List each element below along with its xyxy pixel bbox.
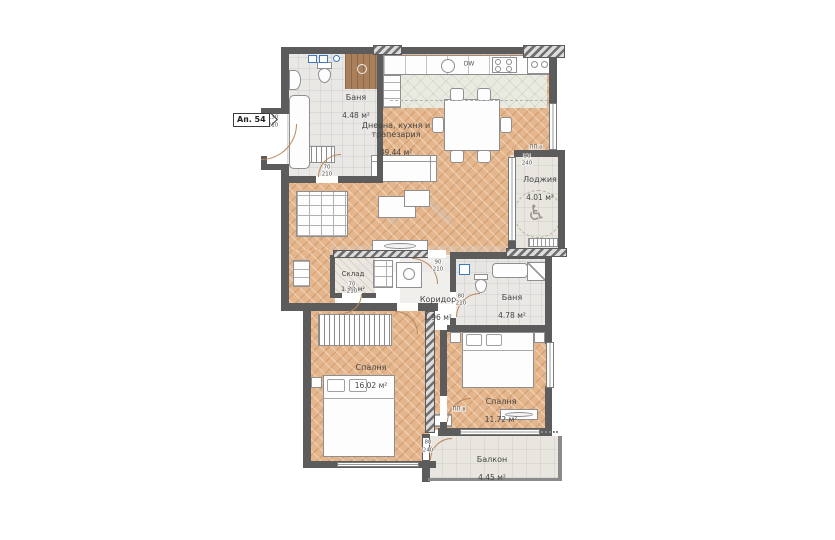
room-name: Баня [342,93,370,102]
room-area: 4.45 м² [477,474,507,483]
room-label-balcony: Балкон 4.45 м² [477,446,507,491]
room-area: 4.78 м² [498,312,526,321]
wall-segment [303,303,311,468]
chair [500,117,512,133]
room-label-living: Дневна, кухня и трапезария 39.44 м² [362,112,430,167]
dimension-label: 240 [521,160,533,165]
wall-segment [549,54,557,105]
room-label-bedroom2: Спалня 11.72 м² [485,388,518,433]
drain-icon [333,55,340,62]
dimension-label: 240 [422,447,434,452]
bathtub [492,263,528,278]
chair [477,150,491,163]
wardrobe [318,314,392,346]
room-name: Баня [498,293,526,302]
apartment-tag: Ап. 54 [233,113,270,127]
wall-segment [545,386,552,434]
balcony-railing [558,436,562,481]
dimension-label: 70 [348,281,356,286]
wall-segment-hatched [333,250,433,258]
dimension-label: 210 [321,171,333,176]
room-area: 16.02 м² [355,382,388,391]
tv-icon [384,243,416,249]
wall-segment-hatched [373,45,402,55]
loggia-sliding-door [508,157,516,241]
wall-segment [447,325,547,332]
dimension-label: 210 [432,266,444,271]
door-opening-corridor [428,250,446,258]
wall-segment [281,47,553,54]
stove-burner-icon [506,59,512,65]
appliance-knob-icon [531,61,538,68]
wall-segment-hatched [523,45,565,58]
dimension-label: 90 [434,259,442,264]
room-label-corridor: Коридор 1.96 м² [420,286,456,331]
room-label-bath2: Баня 4.78 м² [498,284,526,329]
room-label-bedroom1: Спалня 16.02 м² [355,354,388,399]
pillow [327,379,345,392]
room-name: Балкон [477,455,507,464]
wall-segment [545,255,552,333]
storage-shelves [373,260,393,288]
dimension-label: 90 [523,153,531,158]
pillow [466,334,482,346]
room-area: 4.01 м² [523,194,557,203]
blanket-line [462,350,534,351]
nightstand [450,332,461,343]
dimension-label: ПП.в [452,406,466,411]
door-opening-bedroom2 [440,396,447,422]
wall-segment-hatched [506,248,567,257]
dimension-label: 80 [457,293,465,298]
pillow [486,334,502,346]
stove-burner-icon [495,66,501,72]
wall-segment [281,168,289,308]
dimension-label: 210 [346,288,358,293]
door-opening-bedroom1 [397,303,418,311]
dining-table [444,99,500,151]
ac-unit [528,238,560,247]
sink-icon [289,70,301,90]
washing-machine-icon [308,55,317,63]
shower-drain-icon [357,64,367,74]
coffee-table [404,190,430,207]
floor-plan-canvas: DW ♿ [0,0,835,540]
nightstand [311,377,322,388]
dimension-label: 210 [455,300,467,305]
room-name: Коридор [420,295,456,304]
kitchen-cabinet-column [383,75,401,108]
room-name: Спалня [355,363,388,372]
dimension-label: ПП.о [529,144,544,149]
shower-cabin [527,262,546,281]
room-label-loggia: Лоджия 4.01 м² [523,166,557,211]
window [546,342,554,388]
wall-segment [281,303,314,311]
room-name: Спалня [485,397,518,406]
dimension-label: 80 [424,439,432,444]
room-name: Склад [341,270,365,278]
room-name: Лоджия [523,175,557,184]
room-area: 39.44 м² [362,149,430,158]
door-opening-bath1 [316,176,338,183]
window [337,462,419,467]
kitchen-sink-icon [441,59,455,73]
stove-burner-icon [495,59,501,65]
stove-burner-icon [506,66,512,72]
upper-cabinet-line [390,100,548,101]
dishwasher-label: DW [464,61,475,67]
dimension-label: 70 [323,164,331,169]
cabinet [293,260,310,287]
washing-machine-icon [459,264,470,275]
bookshelf [296,191,348,237]
wall-segment [281,47,289,112]
chair [450,150,464,163]
room-area: 1.96 м² [420,314,456,323]
room-name: Дневна, кухня и трапезария [362,121,430,139]
room-area: 11.72 м² [485,416,518,425]
chair [432,117,444,133]
appliance-knob-icon [541,61,548,68]
washing-machine-icon [319,55,328,63]
wall-segment [330,255,335,297]
window [549,103,557,150]
wall-segment [558,155,565,255]
nightstand [534,332,545,343]
